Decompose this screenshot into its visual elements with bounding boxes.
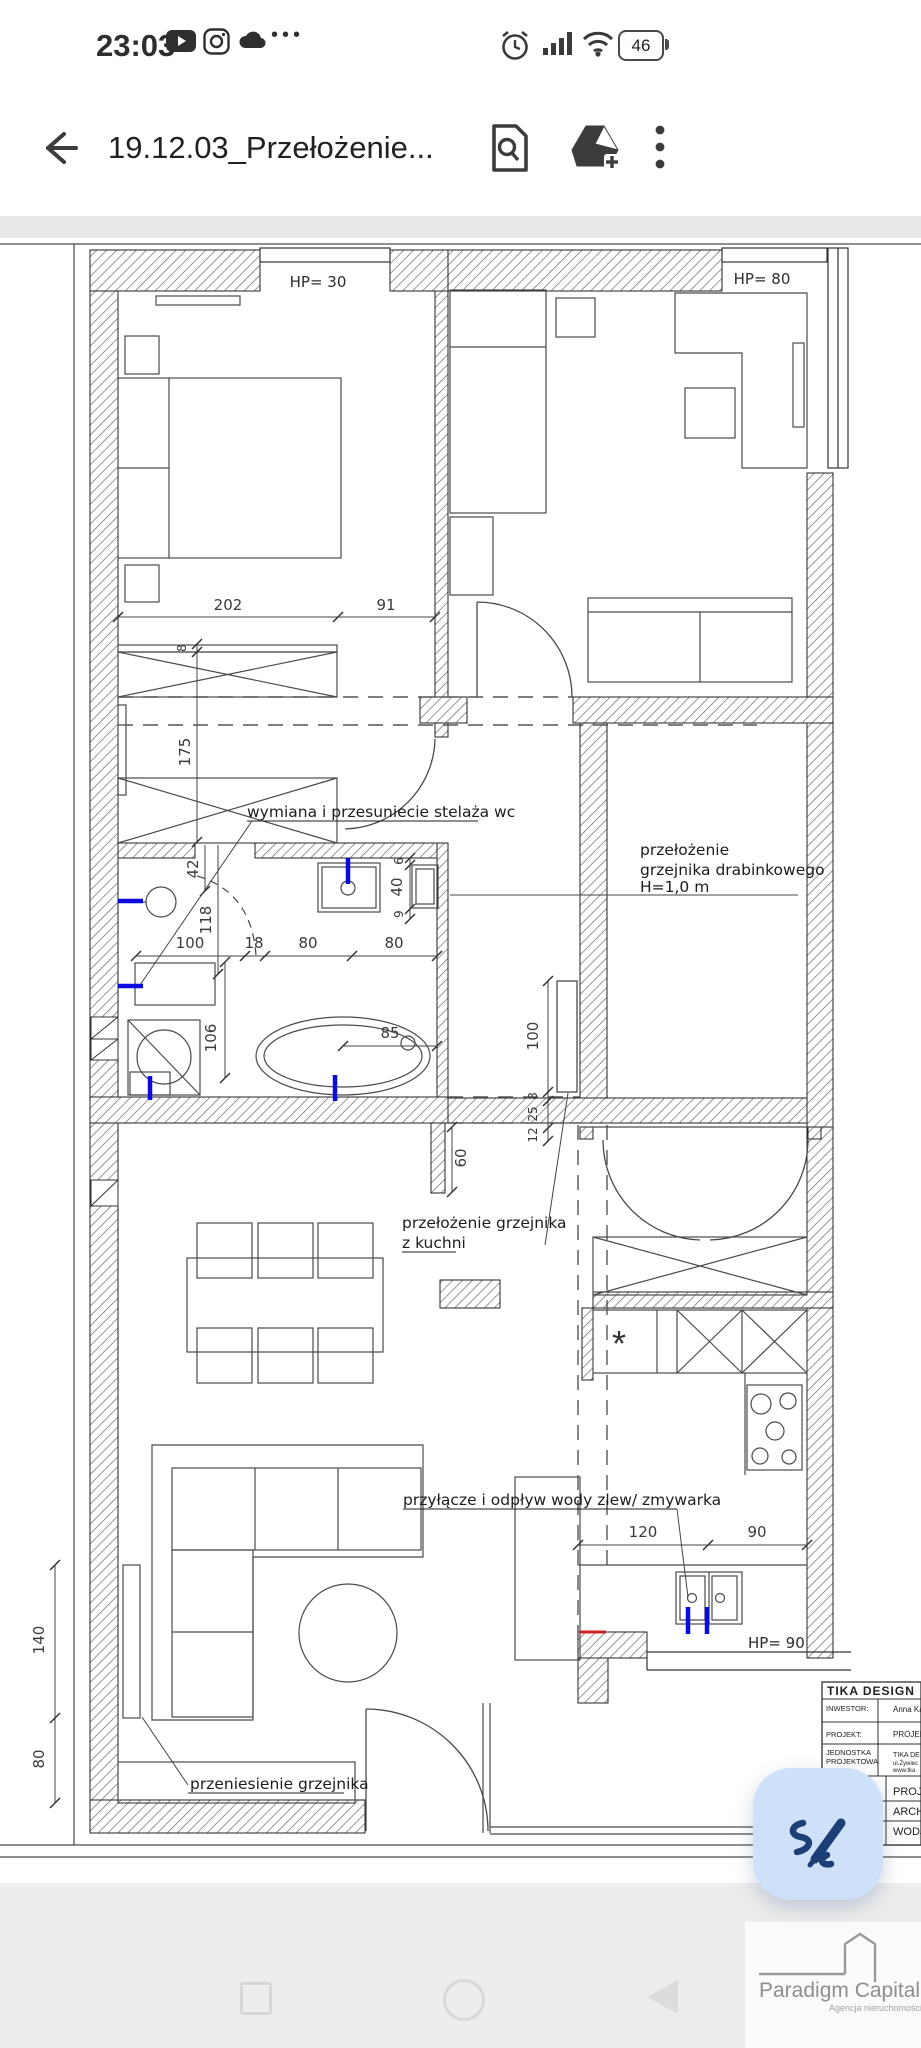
watermark-house-icon <box>845 1934 875 1982</box>
annotation-towel-3: H=1,0 m <box>640 878 709 896</box>
svg-text:140: 140 <box>30 1626 48 1655</box>
svg-text:WODJ: WODJ <box>893 1826 921 1838</box>
wall-kitchen-3 <box>582 1308 593 1380</box>
svg-text:60: 60 <box>452 1148 470 1167</box>
wall-top-1 <box>90 250 260 291</box>
svg-text:85: 85 <box>380 1024 399 1042</box>
svg-text:80: 80 <box>30 1749 48 1768</box>
wall-kitchen-corner-b <box>578 1658 608 1703</box>
overflow-menu-button[interactable] <box>653 122 667 172</box>
svg-text:ARCH: ARCH <box>893 1806 921 1818</box>
home-button[interactable] <box>443 1979 485 2021</box>
wifi-icon <box>581 28 615 58</box>
add-to-drive-button[interactable] <box>568 122 622 172</box>
status-bar: 23:03 ••• 46 <box>0 0 921 90</box>
fridge-mark: * <box>612 1323 626 1364</box>
svg-text:PROJEK: PROJEK <box>893 1730 921 1739</box>
app-toolbar: 19.12.03_Przełożenie... <box>0 90 921 216</box>
search-in-document-button[interactable] <box>486 122 532 174</box>
svg-text:PROJEKTOWA: PROJEKTOWA <box>826 1757 878 1766</box>
wall-bath-bottom <box>90 1097 448 1123</box>
door-jamb-left <box>580 1127 593 1139</box>
svg-text:120: 120 <box>629 1523 658 1541</box>
annotation-kitchen-radiator-2: z kuchni <box>402 1234 466 1252</box>
svg-text:100: 100 <box>176 934 205 952</box>
svg-text:Anna Ka: Anna Ka <box>893 1705 921 1714</box>
wall-bath-top-a <box>118 843 195 858</box>
wall-jamb-1 <box>420 697 467 723</box>
document-title: 19.12.03_Przełożenie... <box>108 130 434 166</box>
door-jamb-right <box>808 1127 821 1139</box>
svg-text:40: 40 <box>388 877 406 896</box>
svg-text:INWESTOR:: INWESTOR: <box>826 1704 868 1713</box>
svg-text:100: 100 <box>524 1022 542 1051</box>
annotation-kitchen-radiator-1: przełożenie grzejnika <box>402 1214 567 1232</box>
wall-right-upper <box>807 473 833 697</box>
phone-screen: HP= 30 HP= 80 HP= 90 <box>0 0 921 2048</box>
wall-bedroom-divider <box>435 291 448 697</box>
svg-text:106: 106 <box>202 1024 220 1053</box>
wall-hall-vertical <box>580 723 607 1098</box>
alarm-icon <box>498 28 532 62</box>
svg-text:80: 80 <box>384 934 403 952</box>
svg-text:90: 90 <box>747 1523 766 1541</box>
back-button[interactable] <box>36 126 80 170</box>
annotation-wc: wymiana i przesuniecie stelaża wc <box>247 803 515 821</box>
instagram-icon <box>203 28 230 55</box>
svg-text:80: 80 <box>298 934 317 952</box>
floorplan-canvas: HP= 30 HP= 80 HP= 90 <box>0 0 921 2048</box>
notification-more-icon: ••• <box>271 24 304 47</box>
wall-bottom-living <box>90 1800 365 1833</box>
youtube-icon <box>166 28 196 54</box>
svg-text:6: 6 <box>392 857 406 865</box>
svg-text:JEDNOSTKA: JEDNOSTKA <box>826 1748 871 1757</box>
svg-text:PROJEKT:: PROJEKT: <box>826 1730 862 1739</box>
svg-text:12: 12 <box>526 1127 540 1142</box>
wall-kitchen-corner-a <box>578 1632 647 1658</box>
watermark-name: Paradigm Capital <box>759 1979 920 2002</box>
svg-text:42: 42 <box>184 859 202 878</box>
svg-text:91: 91 <box>376 596 395 614</box>
svg-text:8: 8 <box>175 644 189 652</box>
wall-stub-60 <box>431 1123 445 1193</box>
window-label-hp30: HP= 30 <box>290 273 347 291</box>
window-label-hp90: HP= 90 <box>748 1634 805 1652</box>
svg-text:www.tka: www.tka <box>892 1768 916 1774</box>
wall-kitchen-1 <box>440 1280 500 1308</box>
wall-top-2 <box>390 250 448 291</box>
svg-text:TIKA DE: TIKA DE <box>893 1752 920 1759</box>
recents-button[interactable] <box>240 1982 272 2015</box>
wall-hall-band <box>573 697 833 723</box>
signature-pen-icon <box>779 1795 857 1873</box>
svg-text:118: 118 <box>197 906 215 935</box>
annotation-towel-2: grzejnika drabinkowego <box>640 861 825 879</box>
annotation-towel-1: przełożenie <box>640 841 729 859</box>
svg-text:18: 18 <box>244 934 263 952</box>
annotation-water: przyłącze i odpływ wody zlew/ zmywarka <box>403 1491 721 1509</box>
svg-text:175: 175 <box>176 738 194 767</box>
edit-fab-button[interactable] <box>753 1768 883 1900</box>
title-block-company: TIKA DESIGN <box>827 1684 915 1698</box>
window-label-hp80: HP= 80 <box>734 270 791 288</box>
wall-mid-band <box>448 1098 807 1123</box>
svg-text:202: 202 <box>214 596 243 614</box>
battery-icon: 46 <box>618 30 664 61</box>
svg-text:PROJE: PROJE <box>893 1786 921 1798</box>
signal-icon <box>541 28 575 58</box>
clock: 23:03 <box>96 28 175 64</box>
svg-text:8: 8 <box>526 1092 540 1100</box>
watermark-tagline: Agencja nieruchomości <box>829 2003 921 2013</box>
svg-text:ul.Żywiec: ul.Żywiec <box>893 1760 918 1767</box>
annotation-radiator-move: przeniesienie grzejnika <box>190 1775 369 1793</box>
page-gap-top <box>0 216 921 238</box>
svg-text:25: 25 <box>526 1106 540 1121</box>
svg-text:9: 9 <box>392 910 406 918</box>
cloud-icon <box>237 28 267 52</box>
back-nav-button[interactable] <box>647 1980 678 2014</box>
wall-top-3 <box>448 250 722 291</box>
wall-bath-right <box>437 843 448 1097</box>
wall-bath-top-b <box>255 843 448 858</box>
watermark: Paradigm Capital Agencja nieruchomości <box>745 1922 921 2048</box>
